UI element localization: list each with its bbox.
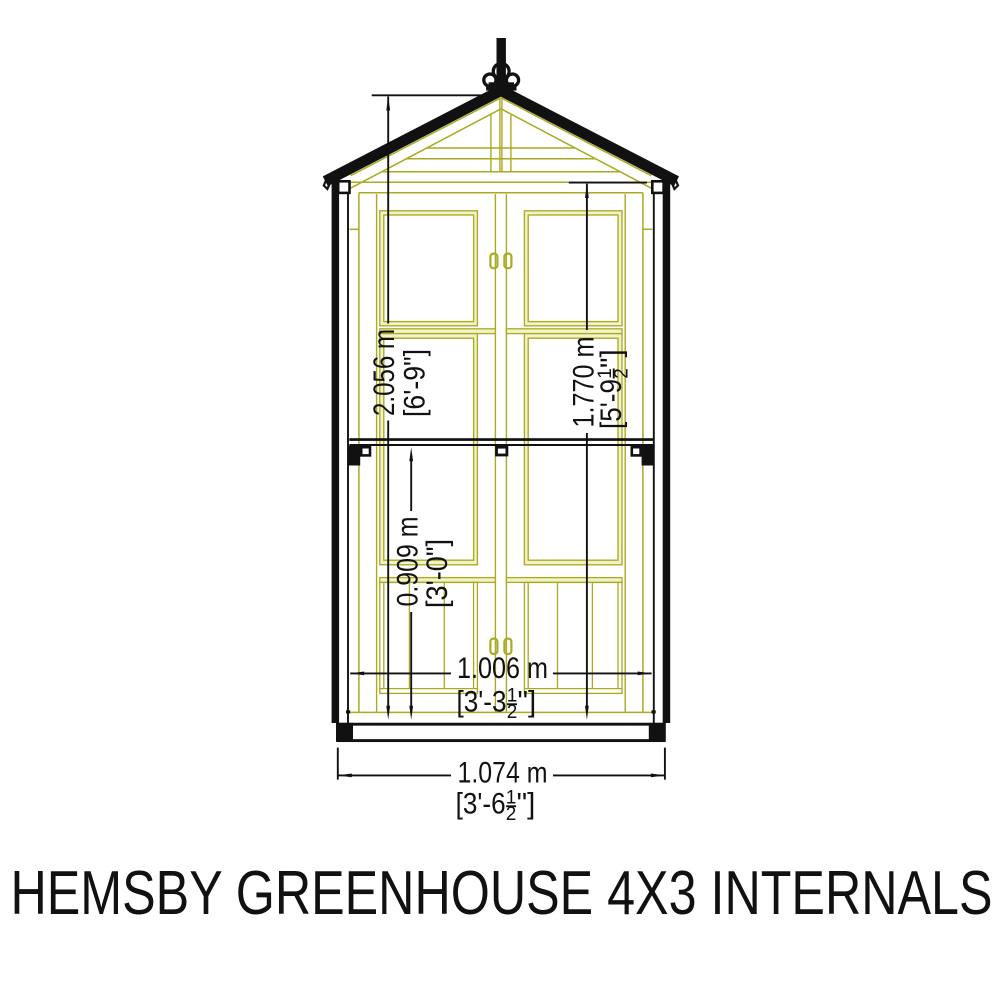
svg-text:[3'-6: [3'-6 xyxy=(456,788,506,821)
svg-text:[3'-0"]: [3'-0"] xyxy=(421,539,454,608)
svg-text:HEMSBY GREENHOUSE 4X3 INTERNAL: HEMSBY GREENHOUSE 4X3 INTERNALS xyxy=(11,859,993,928)
svg-text:[6'-9"]: [6'-9"] xyxy=(399,349,432,417)
svg-text:0.909 m: 0.909 m xyxy=(392,517,425,607)
svg-text:2: 2 xyxy=(506,804,517,825)
svg-text:"]: "] xyxy=(518,686,537,719)
svg-text:[3'-3: [3'-3 xyxy=(457,686,507,719)
svg-text:"]: "] xyxy=(517,788,536,821)
svg-text:2.056 m: 2.056 m xyxy=(368,329,401,416)
svg-text:2: 2 xyxy=(612,368,633,379)
svg-text:2: 2 xyxy=(507,702,518,723)
svg-text:"]: "] xyxy=(595,349,628,368)
svg-text:1.006 m: 1.006 m xyxy=(457,652,548,685)
svg-text:1.074 m: 1.074 m xyxy=(458,757,548,790)
svg-text:[5'-9: [5'-9 xyxy=(595,379,628,429)
